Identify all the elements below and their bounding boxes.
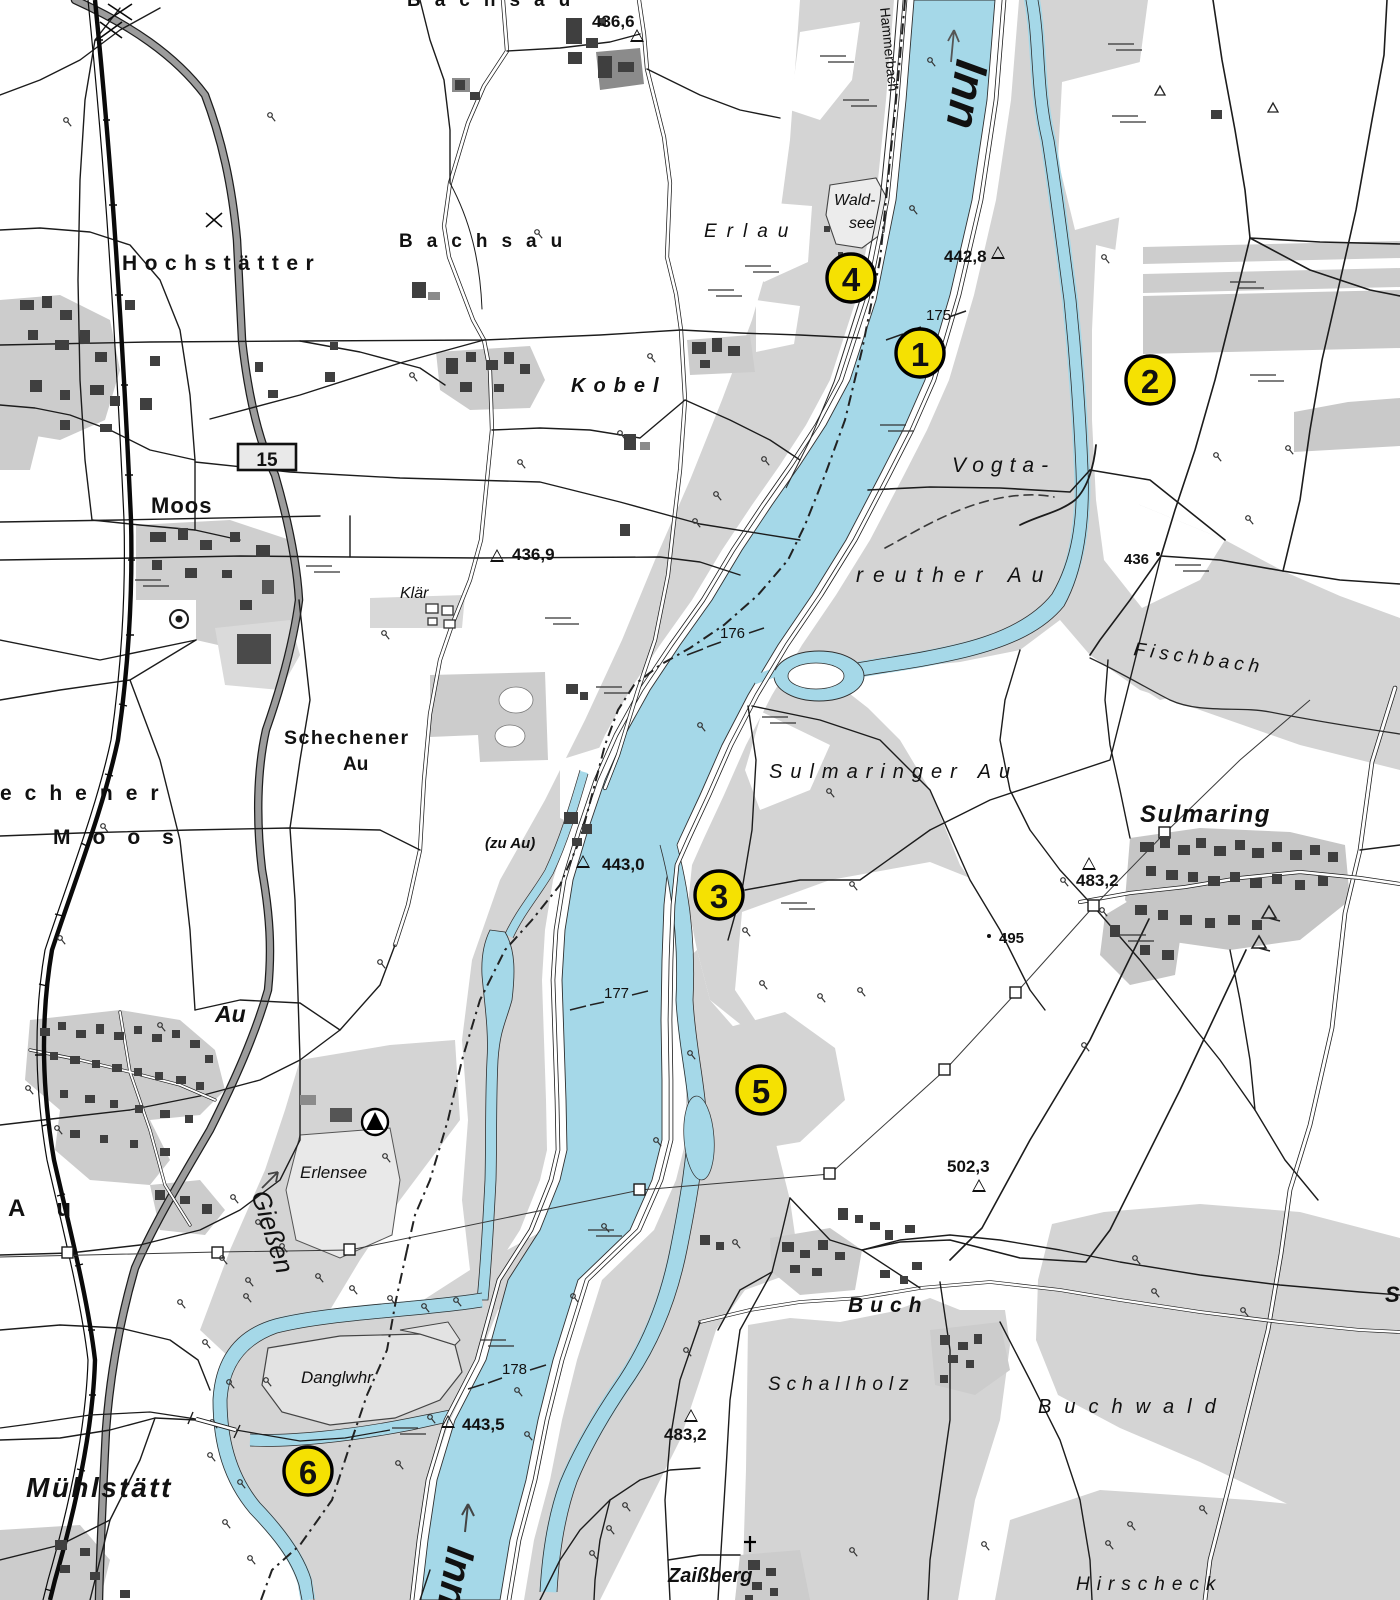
svg-text:S: S bbox=[1385, 1282, 1400, 1307]
svg-text:443,5: 443,5 bbox=[462, 1415, 505, 1434]
svg-text:443,0: 443,0 bbox=[602, 855, 645, 874]
svg-text:Hirscheck: Hirscheck bbox=[1076, 1574, 1222, 1595]
svg-text:Buchwald: Buchwald bbox=[1038, 1396, 1229, 1418]
svg-text:Kobel: Kobel bbox=[571, 375, 667, 397]
svg-text:436,6: 436,6 bbox=[592, 12, 635, 31]
svg-text:reuther Au: reuther Au bbox=[856, 564, 1053, 587]
svg-text:177: 177 bbox=[604, 985, 629, 1002]
svg-text:3: 3 bbox=[710, 878, 728, 915]
svg-text:Danglwhr: Danglwhr bbox=[301, 1368, 374, 1387]
svg-text:Inn: Inn bbox=[936, 56, 998, 132]
svg-text:2: 2 bbox=[1141, 363, 1159, 400]
svg-text:Sulmaring: Sulmaring bbox=[1140, 801, 1271, 828]
svg-text:442,8: 442,8 bbox=[944, 247, 987, 266]
svg-text:Sulmaringer Au: Sulmaringer Au bbox=[769, 761, 1018, 783]
svg-text:176: 176 bbox=[720, 625, 745, 642]
svg-text:Erlau: Erlau bbox=[704, 221, 798, 242]
svg-text:1: 1 bbox=[911, 336, 929, 373]
svg-text:6: 6 bbox=[299, 1454, 317, 1491]
svg-text:Erlensee: Erlensee bbox=[300, 1163, 367, 1182]
svg-text:Mühlstätt: Mühlstätt bbox=[26, 1472, 173, 1503]
svg-text:Au: Au bbox=[214, 1001, 246, 1027]
svg-text:436,9: 436,9 bbox=[512, 545, 555, 564]
svg-text:Moos: Moos bbox=[151, 493, 212, 518]
svg-text:Schallholz: Schallholz bbox=[768, 1374, 915, 1395]
svg-text:483,2: 483,2 bbox=[1076, 871, 1119, 890]
svg-text:Hochstätter: Hochstätter bbox=[122, 252, 321, 275]
svg-text:Au: Au bbox=[343, 754, 368, 775]
svg-text:Vogta-: Vogta- bbox=[952, 454, 1055, 477]
svg-text:Zaißberg: Zaißberg bbox=[667, 1565, 752, 1587]
svg-text:Au: Au bbox=[8, 1195, 102, 1222]
svg-text:4: 4 bbox=[842, 261, 861, 298]
svg-text:15: 15 bbox=[256, 450, 278, 471]
svg-text:echener: echener bbox=[0, 782, 172, 805]
svg-text:178: 178 bbox=[502, 1361, 527, 1378]
svg-text:436: 436 bbox=[1124, 551, 1149, 568]
svg-text:Schechener: Schechener bbox=[284, 727, 410, 749]
svg-text:(zu Au): (zu Au) bbox=[485, 835, 535, 852]
svg-text:Wald-: Wald- bbox=[834, 192, 876, 209]
svg-text:5: 5 bbox=[752, 1073, 770, 1110]
svg-text:175: 175 bbox=[926, 307, 951, 324]
svg-text:Bachsau: Bachsau bbox=[407, 0, 584, 11]
svg-text:Klär: Klär bbox=[400, 585, 429, 602]
svg-text:495: 495 bbox=[999, 930, 1024, 947]
svg-text:Bachsau: Bachsau bbox=[399, 231, 576, 252]
svg-text:Moos: Moos bbox=[53, 826, 196, 849]
svg-text:Buch: Buch bbox=[848, 1294, 929, 1317]
svg-text:502,3: 502,3 bbox=[947, 1157, 990, 1176]
svg-text:483,2: 483,2 bbox=[664, 1425, 707, 1444]
svg-text:see: see bbox=[849, 215, 875, 232]
